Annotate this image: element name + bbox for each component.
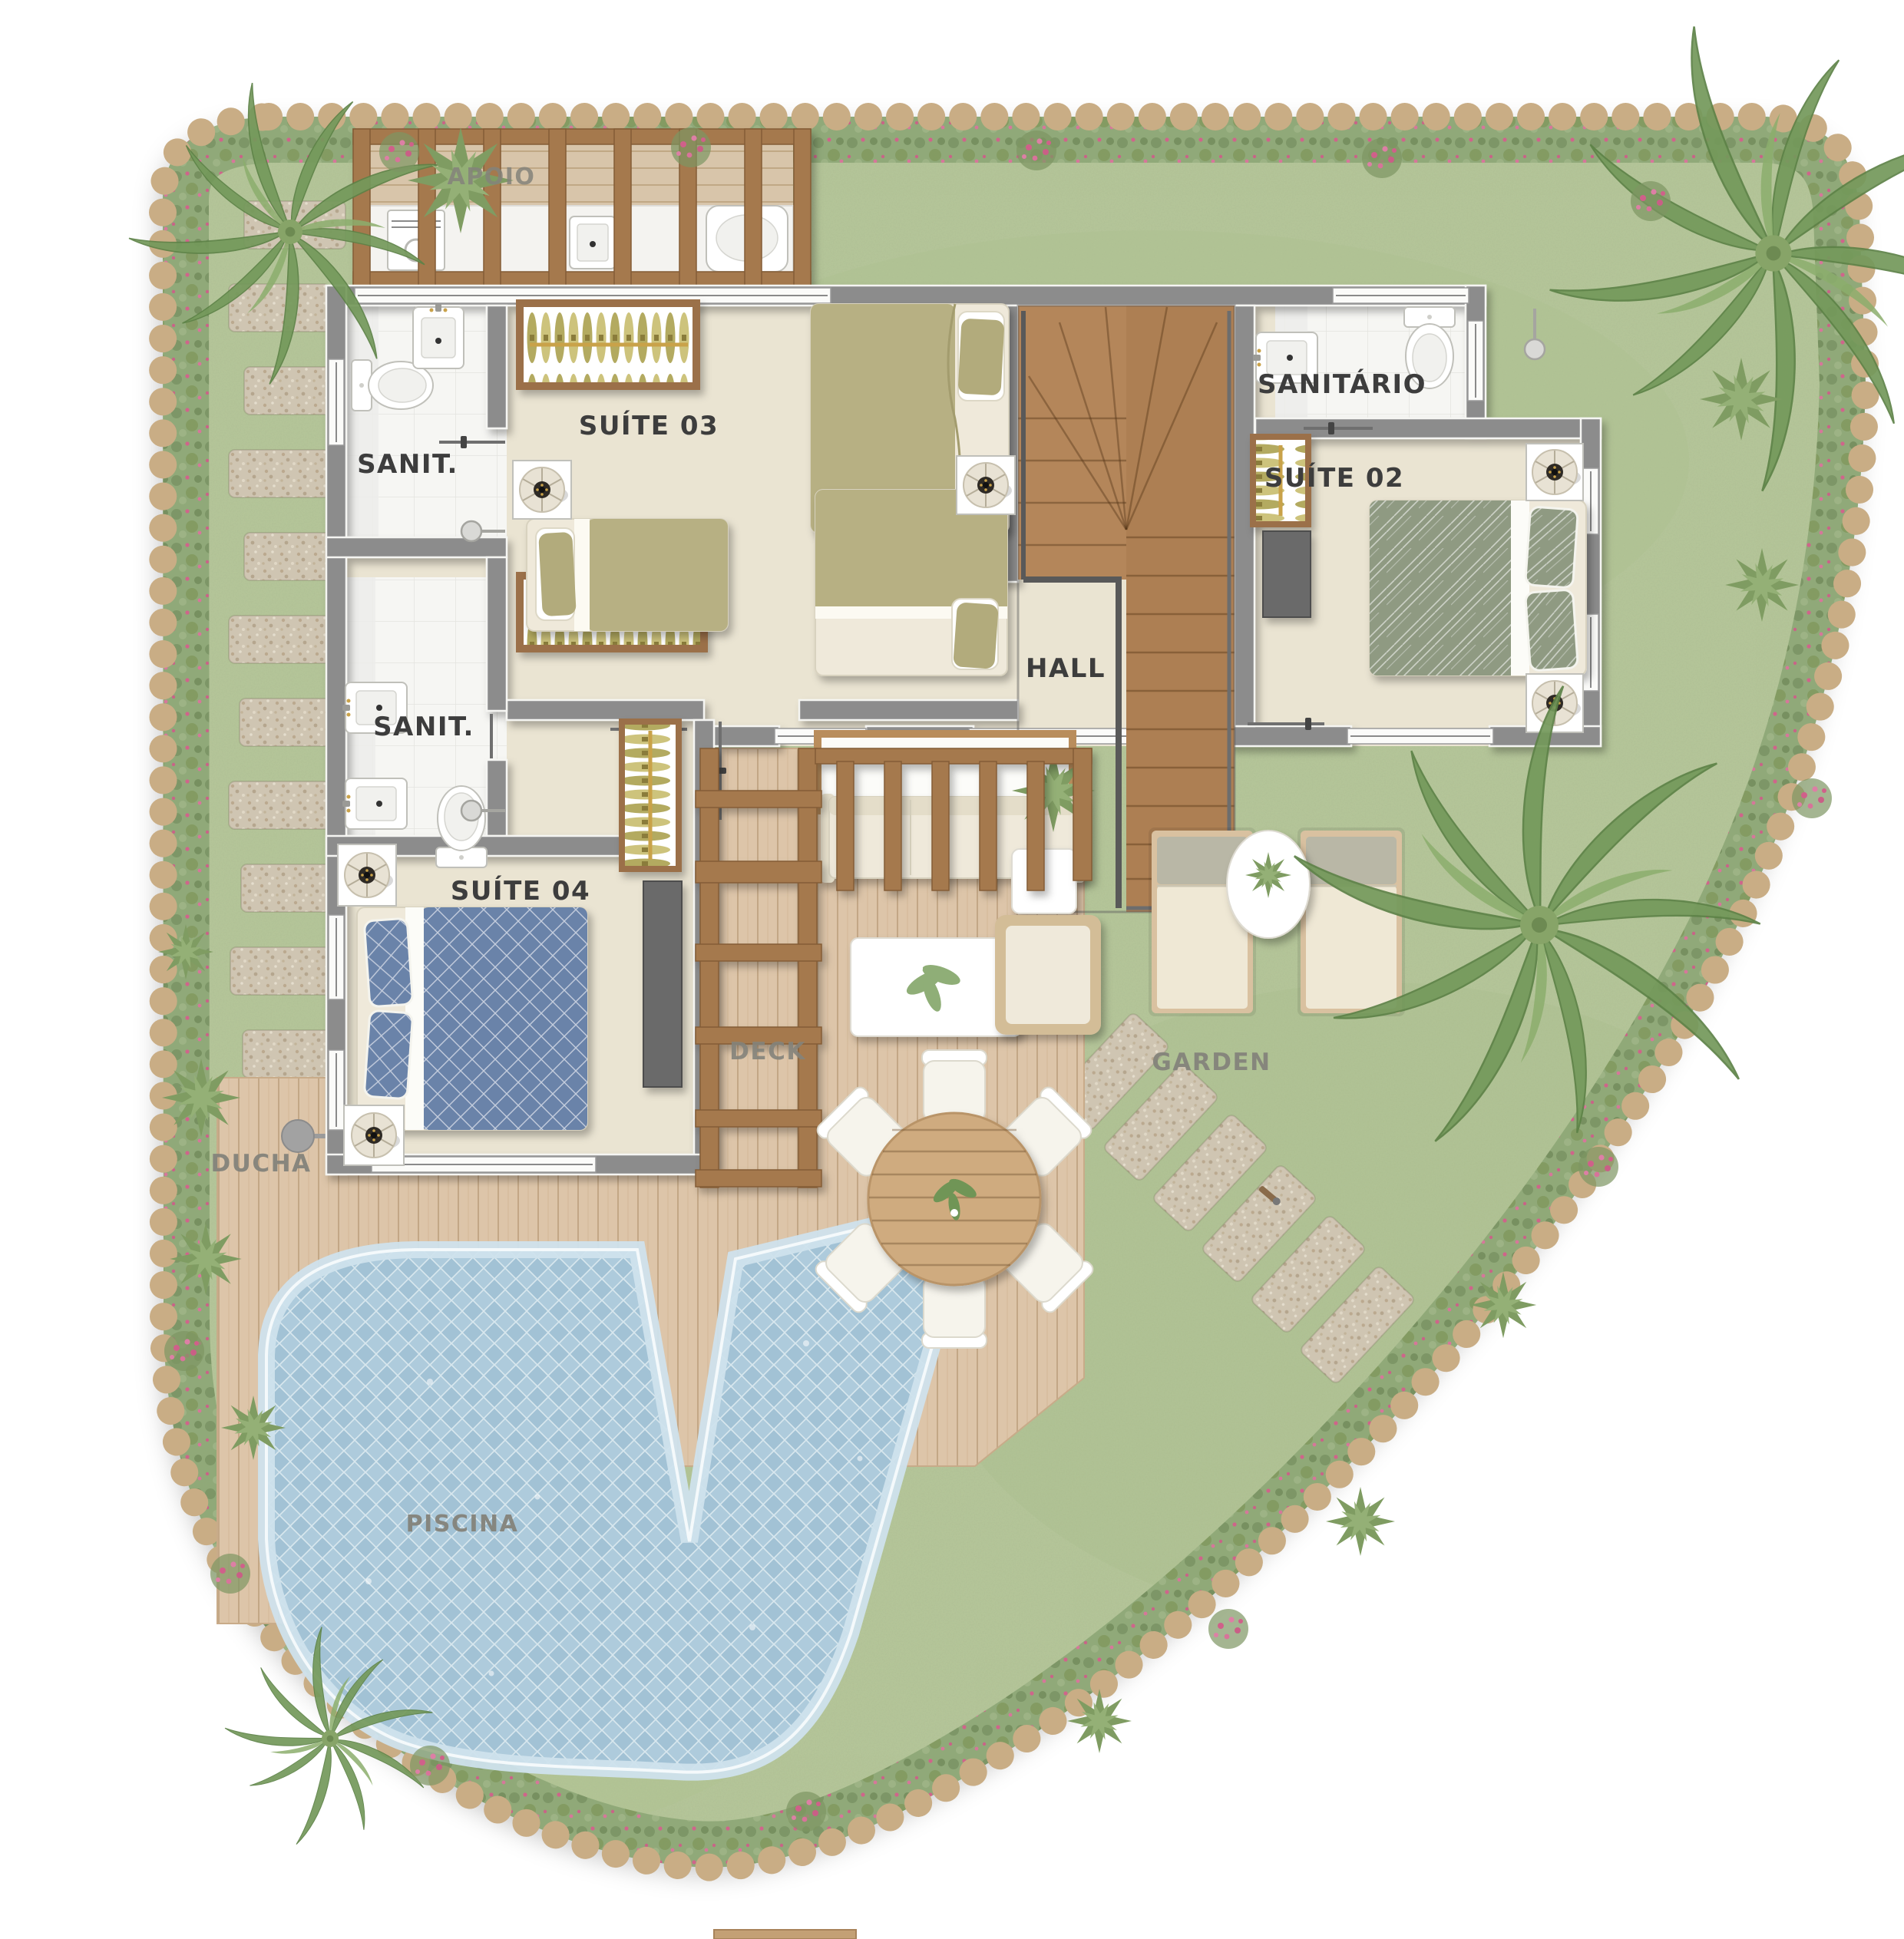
room-label-suite02: SUÍTE 02 — [1264, 462, 1404, 494]
bed-single — [815, 490, 1007, 676]
window — [329, 915, 344, 999]
room-label-sanit-top: SANIT. — [357, 449, 458, 480]
nightstand — [344, 1105, 404, 1165]
bed-double — [1370, 500, 1586, 676]
floor-plan: APOIO SANIT. SUÍTE 03 SANITÁRIO SUÍTE 02… — [0, 0, 1904, 1939]
tv-panel — [643, 881, 682, 1087]
nightstand — [957, 456, 1015, 514]
nightstand — [338, 844, 396, 906]
area-label-deck: DECK — [729, 1038, 806, 1065]
window — [1347, 728, 1493, 744]
window — [329, 359, 344, 445]
room-label-apoio: APOIO — [448, 164, 536, 190]
room-label-sanitario: SANITÁRIO — [1258, 368, 1426, 400]
area-label-piscina: PISCINA — [406, 1511, 519, 1538]
nightstand — [513, 461, 571, 519]
room-label-suite03: SUÍTE 03 — [579, 410, 719, 441]
cropped-wood-strip — [714, 1930, 856, 1939]
tv-cabinet — [1263, 531, 1311, 617]
sliding-door — [372, 1157, 596, 1172]
area-label-ducha: DUCHA — [210, 1150, 311, 1178]
window — [329, 1050, 344, 1130]
window — [1333, 288, 1469, 303]
window — [1468, 321, 1483, 401]
pool — [0, 1222, 950, 1772]
bed-double — [357, 907, 587, 1130]
wardrobe-hangers-icon — [619, 718, 682, 872]
wardrobe-hangers-icon — [516, 299, 700, 390]
washing-machine-icon — [388, 210, 445, 270]
service-sink-icon — [570, 216, 616, 269]
nightstand — [1526, 444, 1583, 500]
room-label-hall: HALL — [1026, 653, 1106, 684]
armchair — [995, 915, 1101, 1035]
room-label-suite04: SUÍTE 04 — [451, 875, 590, 907]
area-label-garden: GARDEN — [1152, 1049, 1271, 1076]
bed-single — [527, 519, 728, 631]
room-label-sanit-bottom: SANIT. — [373, 712, 474, 742]
apoio-pergola — [353, 129, 811, 289]
